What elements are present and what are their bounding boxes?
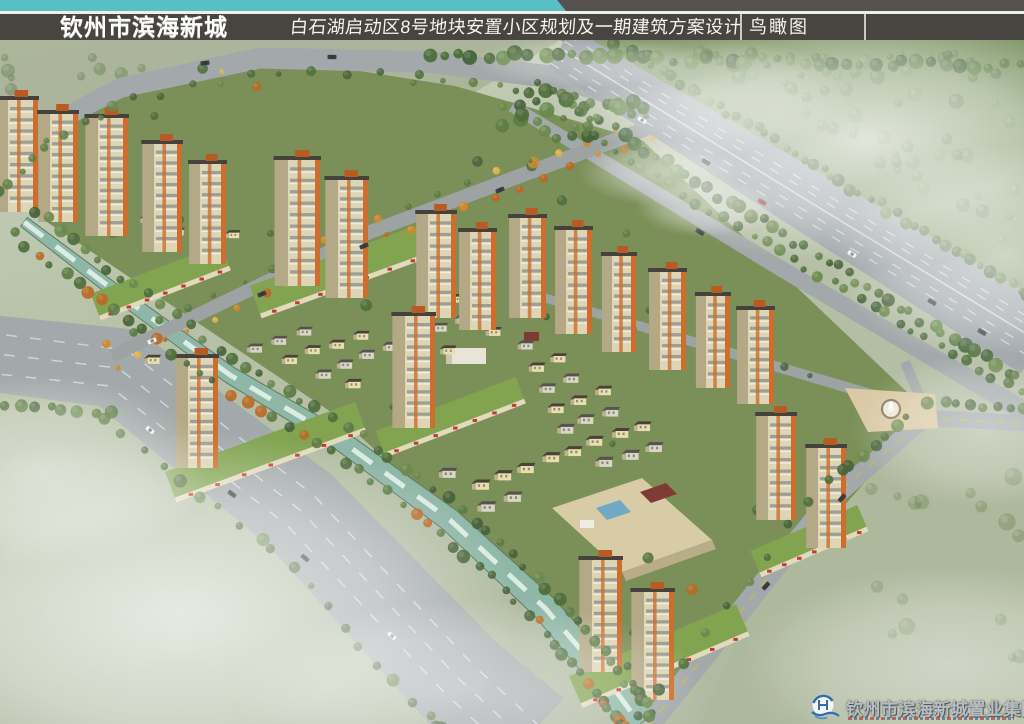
pavilion-roof	[524, 332, 539, 341]
company-name: 钦州市滨海新城置业集团	[846, 695, 1024, 720]
apartment-tower	[508, 208, 547, 318]
title-bar: 钦州市滨海新城 白石湖启动区8号地块安置小区规划及一期建筑方案设计 鸟瞰图	[0, 0, 1024, 40]
apartment-tower	[736, 300, 775, 404]
apartment-tower	[805, 438, 847, 548]
apartment-tower	[415, 204, 457, 318]
bar-divider-2	[864, 14, 866, 40]
developer-watermark: 钦州市滨海新城置业集团	[810, 693, 1024, 721]
apartment-tower	[458, 222, 497, 330]
apartment-tower	[391, 306, 436, 428]
apartment-tower	[601, 246, 637, 352]
apartment-tower	[274, 150, 321, 286]
apartment-tower	[188, 154, 227, 264]
view-type-label: 鸟瞰图	[749, 14, 809, 40]
apartment-tower	[324, 170, 369, 298]
apartment-tower	[84, 108, 129, 236]
company-tagline-strip	[848, 717, 1014, 720]
bar-divider-1	[740, 14, 742, 40]
plan-subtitle: 白石湖启动区8号地块安置小区规划及一期建筑方案设计	[289, 14, 743, 40]
apartment-tower	[695, 286, 731, 388]
project-title: 钦州市滨海新城	[60, 14, 228, 40]
apartment-tower	[0, 90, 39, 212]
company-logo-icon	[810, 693, 840, 721]
apartment-tower	[141, 134, 183, 252]
rendering-scene	[0, 0, 1024, 724]
apartment-tower	[554, 220, 593, 334]
apartment-tower	[648, 262, 687, 370]
apartment-tower	[755, 406, 797, 520]
teal-accent-band	[0, 0, 566, 11]
apartment-tower	[37, 104, 79, 222]
clubhouse-building	[452, 348, 486, 364]
top-band	[0, 0, 1024, 11]
birdseye-rendering-page: 钦州市滨海新城 白石湖启动区8号地块安置小区规划及一期建筑方案设计 鸟瞰图 钦州…	[0, 0, 1024, 724]
